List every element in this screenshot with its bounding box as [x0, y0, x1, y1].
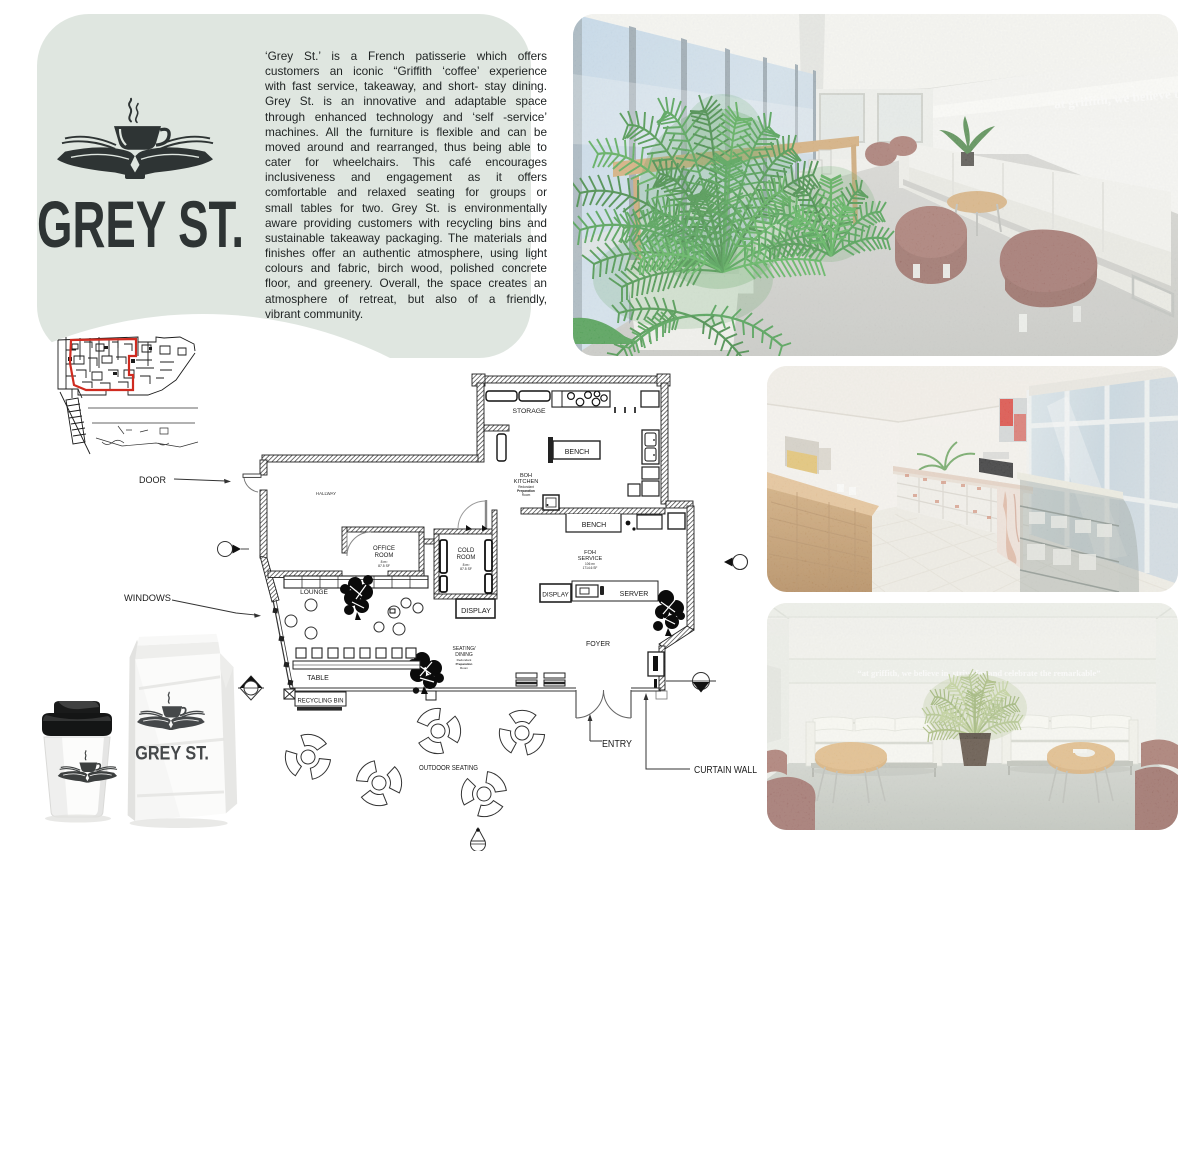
svg-text:GREY ST.: GREY ST.	[135, 743, 209, 764]
svg-text:87.5 SF: 87.5 SF	[460, 567, 472, 571]
svg-text:ROOM: ROOM	[457, 555, 476, 561]
svg-text:LOUNGE: LOUNGE	[300, 589, 328, 596]
svg-text:DOOR: DOOR	[139, 475, 167, 485]
svg-text:BENCH: BENCH	[565, 449, 590, 456]
svg-text:WINDOWS: WINDOWS	[124, 593, 171, 603]
svg-text:Room: Room	[460, 666, 469, 670]
svg-text:OFFICE: OFFICE	[373, 546, 395, 552]
svg-text:BENCH: BENCH	[582, 522, 607, 529]
svg-text:SERVER: SERVER	[620, 591, 649, 598]
svg-text:HALLWAY: HALLWAY	[316, 491, 336, 496]
svg-text:RECYCLING BIN: RECYCLING BIN	[298, 698, 344, 705]
svg-text:Room: Room	[522, 493, 531, 497]
svg-text:87.5 SF: 87.5 SF	[378, 564, 390, 568]
svg-text:COLD: COLD	[458, 548, 475, 554]
svg-text:OUTDOOR SEATING: OUTDOOR SEATING	[419, 763, 478, 772]
svg-text:TABLE: TABLE	[307, 675, 329, 682]
svg-text:FOYER: FOYER	[586, 641, 610, 648]
svg-text:ENTRY: ENTRY	[602, 739, 632, 750]
svg-text:ROOM: ROOM	[375, 553, 394, 559]
svg-text:DISPLAY: DISPLAY	[461, 606, 491, 615]
svg-text:1714.6 SF: 1714.6 SF	[583, 566, 598, 570]
svg-text:CURTAIN WALL: CURTAIN WALL	[694, 765, 757, 776]
svg-text:DISPLAY: DISPLAY	[542, 592, 569, 599]
svg-text:STORAGE: STORAGE	[512, 408, 546, 415]
